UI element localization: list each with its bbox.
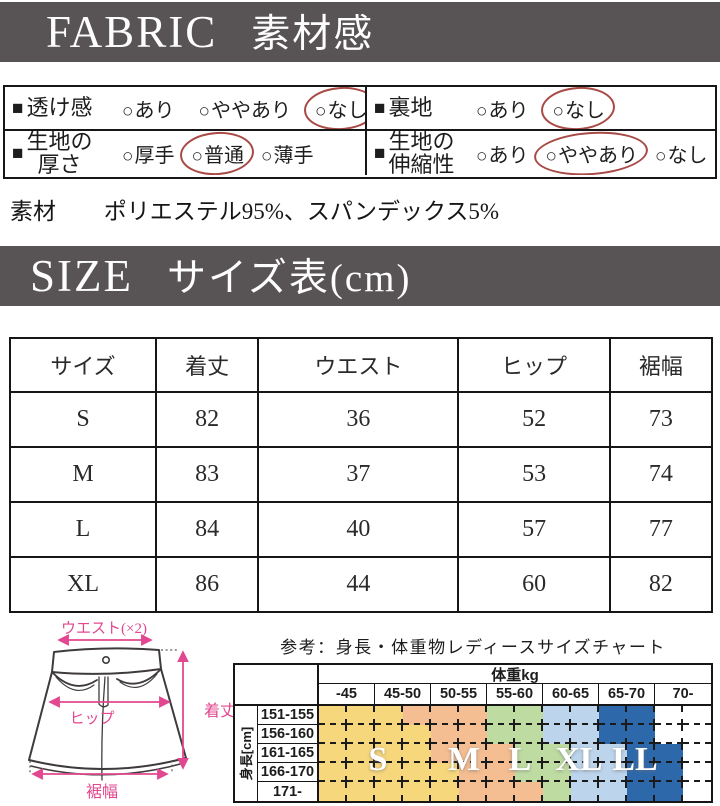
radio-circle-icon: ○ (552, 101, 563, 122)
fabric-row-stretch: ■ 生地の 伸縮性 ○あり○ややあり○なし (367, 131, 715, 175)
fabric-options: ○あり○ややあり○なし (476, 139, 707, 168)
fabric-option-label: あり (488, 145, 528, 167)
hem-label: 裾幅 (86, 783, 118, 801)
fabric-option-selected: ○なし (552, 94, 604, 123)
chart-cell (347, 782, 375, 801)
chart-cell (683, 763, 711, 782)
size-cell-value: 82 (610, 557, 712, 612)
material-line: 素材 ポリエステル95%、スパンデックス5% (10, 192, 499, 226)
size-cell-value: 52 (458, 392, 609, 447)
fabric-row-label-group: ■ 透け感 (12, 96, 122, 119)
chart-cell (459, 782, 487, 801)
radio-circle-icon: ○ (122, 101, 133, 122)
square-bullet-icon: ■ (12, 99, 23, 118)
fabric-row-label: 裏地 (388, 96, 432, 119)
fabric-option: ○ややあり (198, 94, 290, 123)
size-col-header: 裾幅 (610, 338, 712, 392)
size-cell-label: M (10, 447, 156, 502)
chart-cell (655, 782, 683, 801)
chart-cell (571, 706, 599, 725)
size-section-header: SIZE サイズ表(cm) (0, 246, 720, 306)
size-zone-label: L (509, 741, 532, 779)
chart-cell (515, 706, 543, 725)
chart-cell (655, 744, 683, 763)
square-bullet-icon: ■ (12, 144, 23, 163)
chart-cell (459, 706, 487, 725)
chart-cell (319, 763, 347, 782)
chart-cell (655, 725, 683, 744)
size-cell-value: 40 (258, 502, 458, 557)
fabric-row-thickness: ■ 生地の 厚さ ○厚手○普通○薄手 (5, 131, 367, 175)
waist-label: ウエスト(×2) (61, 620, 147, 637)
size-zone-label: XL (555, 741, 602, 779)
chart-cell (431, 782, 459, 801)
fabric-option-selected: ○普通 (191, 139, 243, 168)
fabric-options: ○あり○ややあり○なし (122, 94, 367, 123)
radio-circle-icon: ○ (545, 146, 556, 167)
fabric-spec-table: ■ 透け感 ○あり○ややあり○なし ■ 裏地 ○あり○なし ■ 生地の 厚さ ○… (3, 85, 717, 179)
size-col-header: 着丈 (156, 338, 258, 392)
radio-circle-icon: ○ (315, 101, 326, 122)
material-label: 素材 (10, 199, 56, 224)
weight-range-header: 55-60 (487, 684, 543, 706)
height-range-header: 171- (258, 782, 319, 801)
fabric-option-label: 薄手 (273, 145, 313, 167)
size-table-row: S82365273 (10, 392, 712, 447)
chart-cell (683, 725, 711, 744)
product-spec-sheet: FABRIC 素材感 ■ 透け感 ○あり○ややあり○なし ■ 裏地 ○あり○なし… (0, 0, 720, 806)
weight-range-header: 70- (655, 684, 711, 706)
chart-cell (319, 744, 347, 763)
chart-cell (655, 706, 683, 725)
radio-circle-icon: ○ (191, 146, 202, 167)
fabric-row-label-group: ■ 裏地 (374, 96, 476, 119)
radio-circle-icon: ○ (476, 146, 487, 167)
skirt-measurement-diagram: ウエスト(×2) ヒップ 着丈 裾幅 (2, 616, 235, 806)
fabric-row-label: 透け感 (26, 96, 92, 119)
size-col-header: サイズ (10, 338, 156, 392)
fabric-option-label: あり (134, 100, 174, 122)
radio-circle-icon: ○ (655, 146, 666, 167)
chart-cell (655, 763, 683, 782)
material-value: ポリエステル95%、スパンデックス5% (104, 199, 499, 224)
size-cell-value: 73 (610, 392, 712, 447)
size-zone-label: S (369, 741, 388, 779)
square-bullet-icon: ■ (374, 99, 385, 118)
fabric-header-en: FABRIC (46, 7, 217, 57)
chart-cell (403, 725, 431, 744)
size-header-ja: サイズ表(cm) (167, 257, 411, 300)
hip-label: ヒップ (69, 710, 114, 727)
size-table-row: XL86446082 (10, 557, 712, 612)
size-cell-value: 36 (258, 392, 458, 447)
size-cell-value: 53 (458, 447, 609, 502)
fabric-option: ○厚手 (122, 139, 174, 168)
chart-cell (403, 706, 431, 725)
fabric-header-ja: 素材感 (251, 13, 374, 56)
weight-range-header: -45 (319, 684, 375, 706)
fabric-option-label: 厚手 (134, 145, 174, 167)
chart-cell (543, 782, 571, 801)
size-cell-label: S (10, 392, 156, 447)
chart-cell (431, 706, 459, 725)
chart-cell (319, 782, 347, 801)
fabric-option: ○あり (476, 94, 528, 123)
height-range-header: 151-155 (258, 706, 319, 725)
size-cell-value: 84 (156, 502, 258, 557)
height-range-header: 161-165 (258, 744, 319, 763)
fabric-row-sheerness: ■ 透け感 ○あり○ややあり○なし (5, 87, 367, 131)
fabric-option-label: ややあり (558, 145, 638, 167)
chart-cell (627, 706, 655, 725)
fabric-row-label: 生地の 厚さ (26, 131, 92, 175)
chart-cell (515, 782, 543, 801)
fabric-row-label-group: ■ 生地の 伸縮性 (374, 131, 476, 175)
chart-cell (487, 782, 515, 801)
height-range-header: 156-160 (258, 725, 319, 744)
fabric-row-label: 生地の 伸縮性 (388, 131, 454, 175)
size-cell-value: 37 (258, 447, 458, 502)
weight-range-header: 50-55 (431, 684, 487, 706)
fabric-row-lining: ■ 裏地 ○あり○なし (367, 87, 715, 131)
chart-cell (571, 782, 599, 801)
fabric-option-label: なし (565, 100, 605, 122)
fabric-option-label: なし (667, 145, 707, 167)
size-cell-label: L (10, 502, 156, 557)
weight-range-header: 65-70 (599, 684, 655, 706)
chart-cell (543, 706, 571, 725)
size-col-header: ウエスト (258, 338, 458, 392)
fabric-section-header: FABRIC 素材感 (0, 2, 720, 62)
fabric-option: ○あり (476, 139, 528, 168)
fabric-option: ○なし (655, 139, 707, 168)
chart-corner-cell (235, 665, 319, 706)
fabric-options: ○厚手○普通○薄手 (122, 139, 313, 168)
size-cell-value: 60 (458, 557, 609, 612)
size-cell-value: 86 (156, 557, 258, 612)
height-range-header: 166-170 (258, 763, 319, 782)
fabric-option-selected: ○なし (315, 94, 367, 123)
chart-cell (375, 782, 403, 801)
square-bullet-icon: ■ (374, 144, 385, 163)
radio-circle-icon: ○ (476, 101, 487, 122)
chart-cell (683, 782, 711, 801)
chart-cell (683, 744, 711, 763)
chart-cell (319, 706, 347, 725)
weight-range-header: 45-50 (375, 684, 431, 706)
size-zone-label: LL (612, 741, 657, 779)
reference-size-chart: 体重kg-4545-5050-5555-6060-6565-7070-身長[cm… (233, 663, 713, 803)
radio-circle-icon: ○ (122, 146, 133, 167)
fabric-option: ○あり (122, 94, 174, 123)
size-table: サイズ着丈ウエストヒップ裾幅 S82365273M83375374L844057… (9, 337, 713, 613)
chart-cell (375, 706, 403, 725)
size-cell-value: 77 (610, 502, 712, 557)
chart-cell (347, 706, 375, 725)
chart-cell (599, 782, 627, 801)
size-cell-value: 82 (156, 392, 258, 447)
weight-range-header: 60-65 (543, 684, 599, 706)
size-cell-value: 74 (610, 447, 712, 502)
chart-cell (403, 763, 431, 782)
weight-axis-title: 体重kg (319, 665, 711, 684)
fabric-option-label: ややあり (211, 100, 291, 122)
chart-cell (627, 782, 655, 801)
chart-cell (487, 706, 515, 725)
size-header-en: SIZE (30, 251, 133, 301)
chart-cell (319, 725, 347, 744)
size-cell-value: 44 (258, 557, 458, 612)
chart-cell (599, 706, 627, 725)
size-table-row: L84405777 (10, 502, 712, 557)
chart-cell (403, 744, 431, 763)
height-axis-title: 身長[cm] (235, 706, 258, 801)
size-cell-value: 57 (458, 502, 609, 557)
reference-chart-title: 参考：身長・体重物レディースサイズチャート (233, 633, 713, 658)
height-axis-title-text: 身長[cm] (237, 727, 256, 780)
size-zone-label: M (448, 741, 480, 779)
fabric-option-label: あり (488, 100, 528, 122)
fabric-option-label: 普通 (204, 145, 244, 167)
size-cell-value: 83 (156, 447, 258, 502)
size-col-header: ヒップ (458, 338, 609, 392)
size-cell-label: XL (10, 557, 156, 612)
fabric-option: ○薄手 (261, 139, 313, 168)
fabric-row-label-group: ■ 生地の 厚さ (12, 131, 122, 175)
chart-cell (403, 782, 431, 801)
radio-circle-icon: ○ (198, 101, 209, 122)
size-table-header-row: サイズ着丈ウエストヒップ裾幅 (10, 338, 712, 392)
chart-cell (683, 706, 711, 725)
fabric-options: ○あり○なし (476, 94, 605, 123)
fabric-option-label: なし (327, 100, 367, 122)
fabric-option-selected: ○ややあり (545, 139, 637, 168)
size-table-row: M83375374 (10, 447, 712, 502)
radio-circle-icon: ○ (261, 146, 272, 167)
length-label: 着丈 (204, 702, 235, 720)
